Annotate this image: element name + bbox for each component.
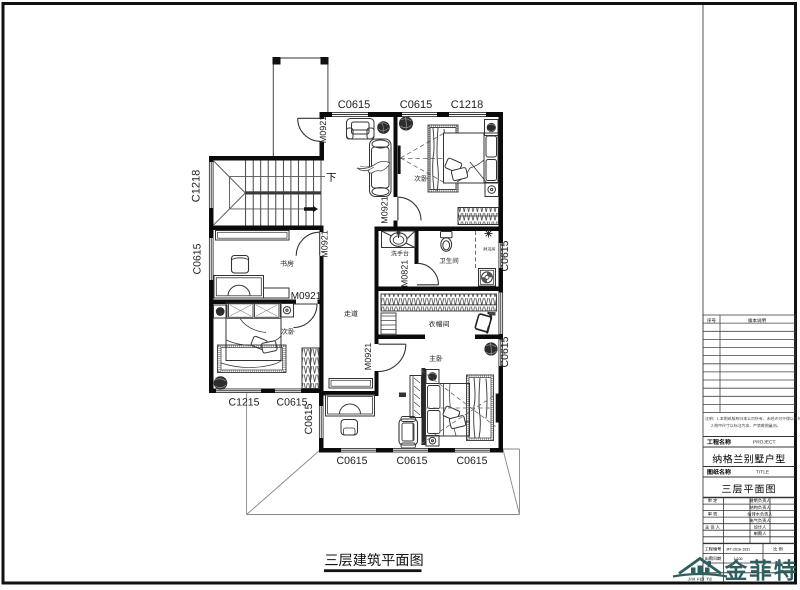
svg-text:M0921: M0921 — [380, 196, 390, 224]
svg-text:注明：1.本图纸版权归本公司所有，未经许可不得以任何形式传播: 注明：1.本图纸版权归本公司所有，未经许可不得以任何形式传播、 — [705, 416, 800, 421]
svg-text:审 定: 审 定 — [708, 498, 718, 503]
svg-text:2.图中尺寸以标注为准，严禁截图量测。: 2.图中尺寸以标注为准，严禁截图量测。 — [711, 423, 780, 428]
svg-text:工程编号: 工程编号 — [705, 547, 722, 552]
svg-text:JFT-2016-1031: JFT-2016-1031 — [726, 547, 750, 551]
svg-text:C0615: C0615 — [397, 455, 428, 467]
svg-text:C0615: C0615 — [303, 403, 315, 434]
svg-text:C0615: C0615 — [499, 336, 511, 367]
svg-text:C0615: C0615 — [338, 99, 370, 111]
svg-text:设计人: 设计人 — [754, 524, 767, 529]
svg-text:JIN FEI TE: JIN FEI TE — [688, 577, 713, 582]
svg-text:M0921: M0921 — [318, 116, 328, 144]
svg-text:主 设 人: 主 设 人 — [705, 524, 721, 529]
svg-text:M0921: M0921 — [363, 343, 373, 371]
svg-text:书房: 书房 — [280, 260, 294, 268]
svg-text:电气负责人: 电气负责人 — [750, 518, 772, 523]
svg-text:C1215: C1215 — [229, 397, 260, 409]
svg-text:C0615: C0615 — [457, 455, 488, 467]
svg-text:走道: 走道 — [344, 310, 358, 318]
svg-text:金菲特: 金菲特 — [724, 559, 799, 584]
svg-text:序号: 序号 — [707, 318, 716, 323]
svg-text:主卧: 主卧 — [429, 355, 443, 363]
svg-text:出图日期: 出图日期 — [705, 556, 722, 561]
svg-text:M0821: M0821 — [400, 260, 410, 288]
svg-text:C1218: C1218 — [191, 170, 203, 202]
svg-text:制图人: 制图人 — [754, 531, 767, 536]
svg-text:工程名称: 工程名称 — [707, 438, 731, 446]
svg-text:C0615: C0615 — [400, 99, 432, 111]
svg-text:给排水负责人: 给排水负责人 — [747, 511, 773, 516]
svg-text:三层建筑平面图: 三层建筑平面图 — [324, 553, 423, 569]
svg-text:图纸名称: 图纸名称 — [707, 468, 731, 476]
svg-text:纳格兰别墅户型: 纳格兰别墅户型 — [712, 454, 786, 466]
svg-text:结构负责人: 结构负责人 — [750, 505, 772, 510]
svg-text:C0615: C0615 — [337, 455, 368, 467]
svg-text:洗手台: 洗手台 — [391, 250, 409, 258]
svg-text:C1218: C1218 — [451, 99, 483, 111]
svg-text:PROJECT: PROJECT — [753, 440, 775, 446]
svg-text:次卧: 次卧 — [414, 175, 428, 183]
svg-text:版本说明: 版本说明 — [748, 318, 766, 323]
svg-text:下: 下 — [326, 172, 337, 184]
svg-text:三层平面图: 三层平面图 — [722, 485, 777, 496]
svg-text:建筑负责人: 建筑负责人 — [750, 498, 772, 503]
svg-text:M0921: M0921 — [291, 291, 322, 302]
svg-text:次卧: 次卧 — [281, 328, 295, 336]
svg-text:C0615: C0615 — [192, 243, 204, 274]
svg-text:M0921: M0921 — [320, 230, 330, 258]
svg-text:TITLE: TITLE — [756, 470, 769, 476]
svg-text:C0615: C0615 — [499, 240, 511, 271]
svg-text:衣帽间: 衣帽间 — [429, 321, 450, 329]
svg-text:卫生间: 卫生间 — [439, 257, 459, 265]
svg-text:比 例: 比 例 — [773, 547, 783, 552]
svg-text:审 核: 审 核 — [708, 511, 718, 516]
svg-text:淋浴房: 淋浴房 — [483, 247, 496, 252]
